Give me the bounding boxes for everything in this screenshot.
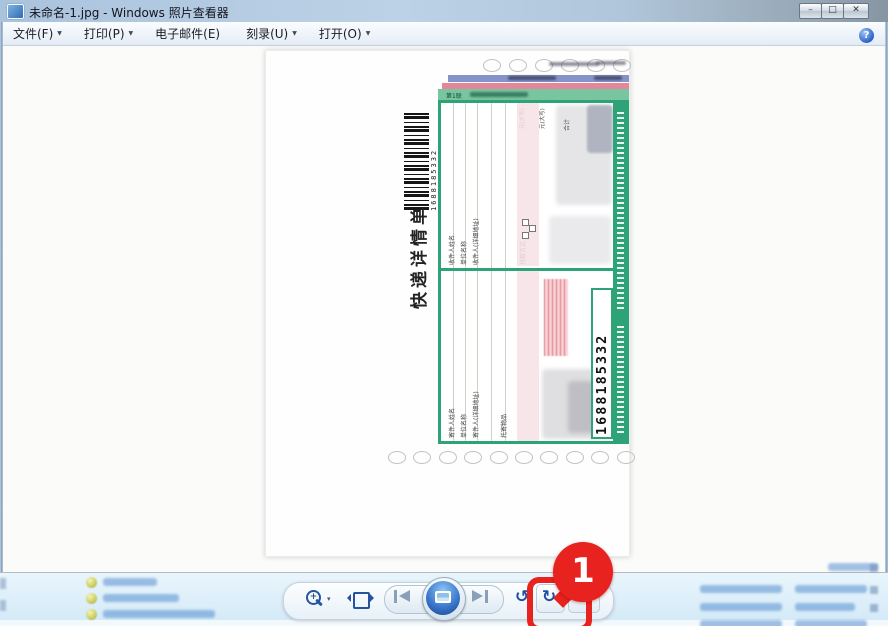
list-bullet-icon	[86, 577, 97, 588]
actual-size-icon	[353, 592, 370, 609]
list-bullet-icon	[86, 593, 97, 604]
edge-fragment	[0, 578, 6, 589]
field-label: 寄件人(详细地址)	[471, 380, 480, 438]
menu-email[interactable]: 电子邮件(E)	[155, 25, 224, 42]
maximize-icon: □	[828, 5, 837, 15]
list-bullet-icon	[86, 609, 97, 620]
copy-sheet-text-smudge	[549, 62, 599, 66]
previous-icon	[399, 590, 410, 602]
blurred-link-text	[795, 585, 867, 593]
copy-number-label: 第1联	[446, 91, 462, 100]
perforation-hole	[515, 451, 533, 464]
barcode	[404, 113, 429, 211]
field-label: 收件人(详细地址)	[471, 207, 480, 265]
red-terms-text-block	[544, 279, 568, 356]
actual-size-icon	[370, 594, 374, 602]
minimize-icon: –	[808, 5, 813, 15]
blurred-link-text	[700, 620, 782, 626]
title-bar: 未命名-1.jpg - Windows 照片查看器	[0, 0, 888, 23]
small-file-icon	[870, 586, 878, 594]
menu-print[interactable]: 打印(P)▼	[84, 25, 133, 42]
next-icon	[472, 590, 483, 602]
blurred-link-text	[700, 585, 782, 593]
white-text-smudge	[617, 109, 624, 309]
field-label: 元(大写)	[538, 102, 546, 129]
blurred-link-text	[103, 610, 215, 618]
menu-file[interactable]: 文件(F)▼	[13, 25, 62, 42]
perforation-hole	[490, 451, 508, 464]
close-button[interactable]: ✕	[843, 3, 869, 19]
chevron-down-icon: ▾	[327, 595, 331, 603]
blurred-link-text	[103, 594, 179, 602]
minimize-button[interactable]: –	[799, 3, 822, 19]
form-grid-line	[491, 103, 492, 268]
perforation-hole	[413, 451, 431, 464]
blurred-link-text	[700, 603, 782, 611]
form-pink-band	[517, 103, 539, 266]
maximize-button[interactable]: □	[821, 3, 844, 19]
annotation-step-number: 1	[571, 551, 595, 591]
perforation-hole	[388, 451, 406, 464]
window-border-left	[0, 22, 3, 626]
edge-fragment	[0, 600, 6, 611]
perforation-hole	[439, 451, 457, 464]
checkbox-icon	[529, 225, 536, 232]
previous-button[interactable]	[390, 588, 418, 608]
field-label: 单位名称	[459, 380, 468, 438]
next-icon	[485, 590, 488, 603]
small-file-icon	[870, 604, 878, 612]
previous-icon	[394, 590, 397, 603]
copy-strip-text-smudge	[470, 92, 528, 97]
chevron-down-icon: ▼	[57, 30, 62, 37]
white-text-smudge	[617, 323, 624, 433]
copy-strip-text-smudge	[508, 76, 556, 80]
chevron-down-icon: ▼	[292, 30, 297, 37]
perforation-hole	[464, 451, 482, 464]
perforation-hole	[591, 451, 609, 464]
waybill-title: 快递详情单	[405, 213, 430, 309]
window-title: 未命名-1.jpg - Windows 照片查看器	[29, 4, 229, 21]
perforation-hole	[617, 451, 635, 464]
slideshow-icon	[437, 593, 449, 601]
form-green-side-band	[613, 103, 629, 441]
barcode-number: 1688185332	[430, 115, 438, 211]
help-icon[interactable]: ?	[859, 28, 874, 43]
perforation-hole	[483, 59, 501, 72]
perforation-hole	[509, 59, 527, 72]
form-grid-line	[505, 103, 506, 268]
annotation-step-badge: 1	[553, 542, 613, 602]
copy-strip-text-smudge	[594, 76, 622, 80]
field-label: 单位名称	[459, 207, 468, 265]
content-bottom-border	[0, 572, 888, 573]
checkbox-icon	[522, 232, 529, 239]
blurred-link-text	[795, 603, 855, 611]
perforation-hole	[566, 451, 584, 464]
menu-open[interactable]: 打开(O)▼	[319, 25, 370, 42]
form-pink-band	[517, 271, 539, 441]
note-smudge	[587, 105, 613, 153]
blurred-link-text	[103, 578, 157, 586]
blurred-link-text	[795, 620, 867, 626]
copy-sheet-text-smudge	[596, 61, 626, 65]
chevron-down-icon: ▼	[366, 30, 371, 37]
field-label: 收件人姓名	[447, 207, 456, 265]
copy-strip-green: 第1联	[438, 89, 629, 100]
photo-scanned-waybill: 第1联 收件人姓名 单位名称 收件人(详细地址) 寄件人姓名 单位名称 寄件人(…	[265, 50, 630, 557]
actual-size-icon	[347, 594, 351, 602]
menu-bar: 文件(F)▼ 打印(P)▼ 电子邮件(E) 刻录(U)▼ 打开(O)▼	[0, 22, 888, 46]
chevron-down-icon: ▼	[129, 30, 134, 37]
field-label: 托寄物品	[499, 388, 508, 438]
checkbox-icon	[522, 219, 529, 226]
next-button[interactable]	[468, 588, 496, 608]
perforation-hole	[540, 451, 558, 464]
handwriting-smudge	[549, 216, 611, 264]
field-label: 寄件人姓名	[447, 380, 456, 438]
small-file-icon	[870, 564, 878, 572]
form-grid-line	[491, 271, 492, 441]
tracking-number-large: 1688185332	[594, 292, 610, 435]
app-icon	[7, 4, 24, 19]
close-icon: ✕	[852, 5, 860, 15]
menu-burn[interactable]: 刻录(U)▼	[246, 25, 297, 42]
screen: 未命名-1.jpg - Windows 照片查看器 – □ ✕ 文件(F)▼ 打…	[0, 0, 888, 626]
